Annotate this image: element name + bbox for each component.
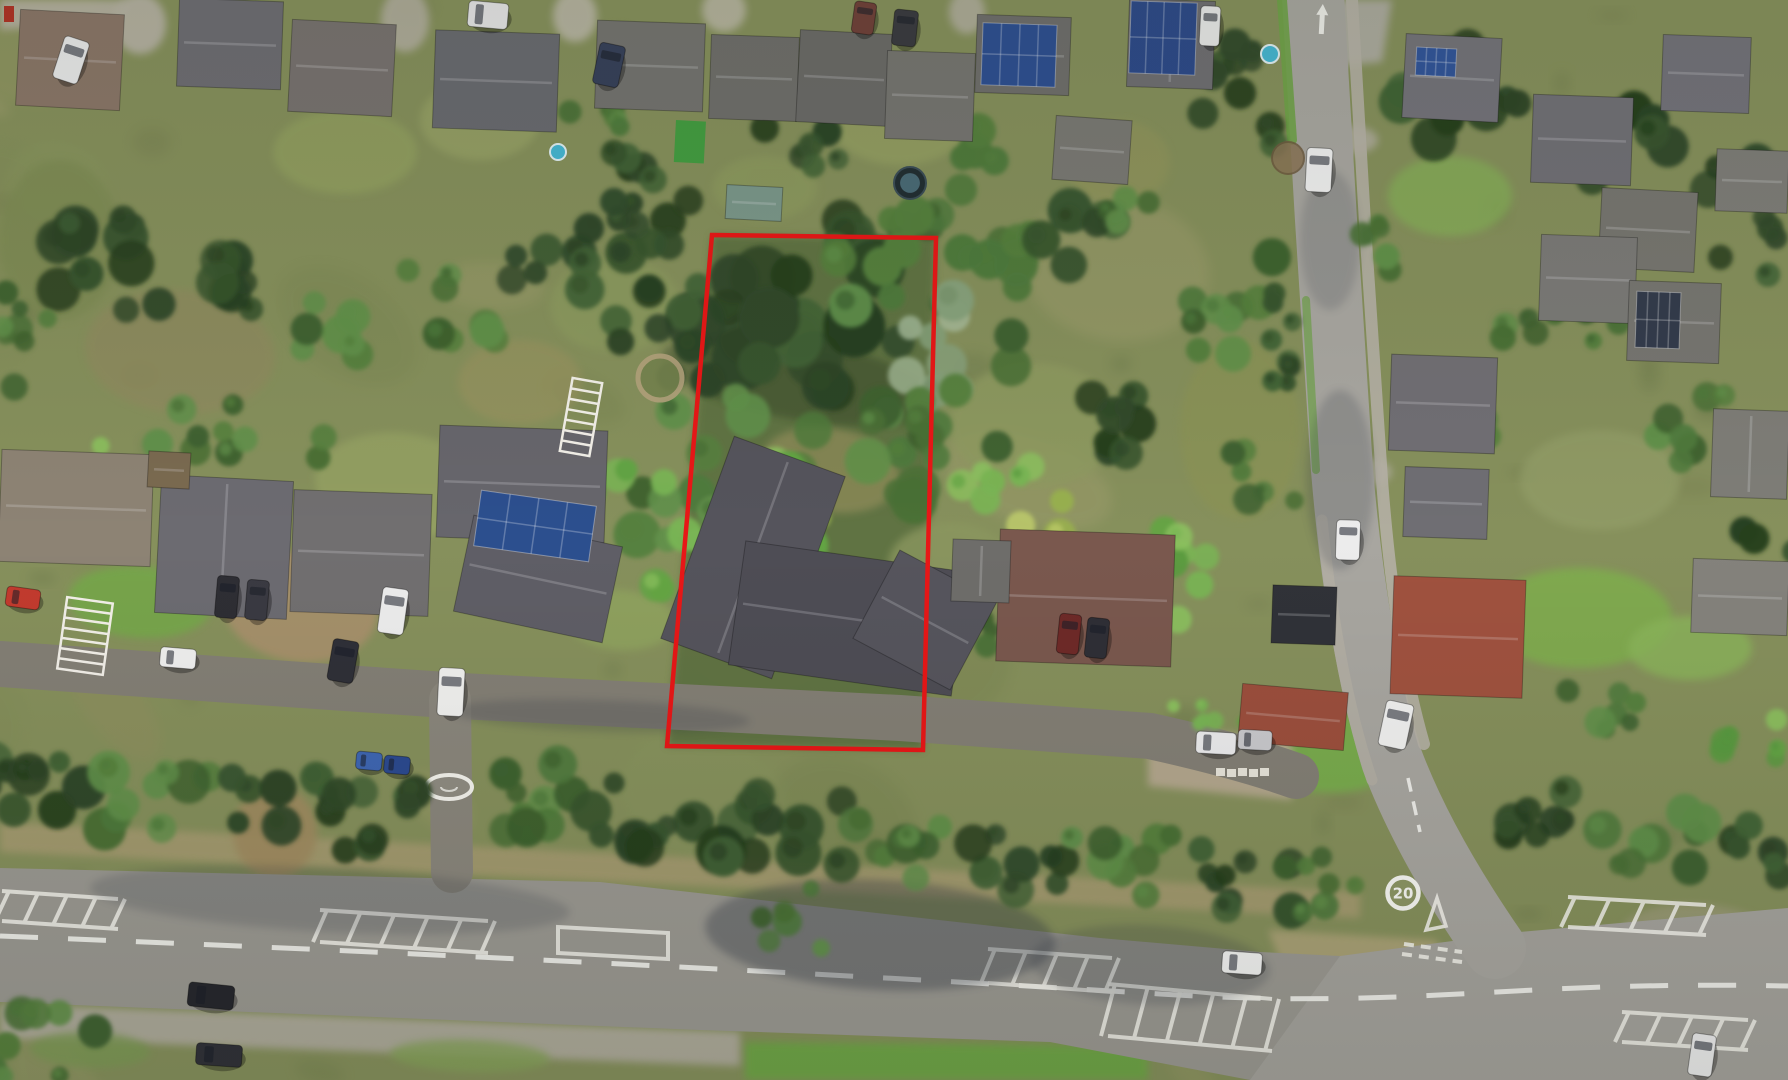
map-viewport: 20: [0, 0, 1788, 1080]
aerial-photo: 20: [0, 0, 1788, 1080]
photo-grade-overlay: [0, 0, 1788, 1080]
